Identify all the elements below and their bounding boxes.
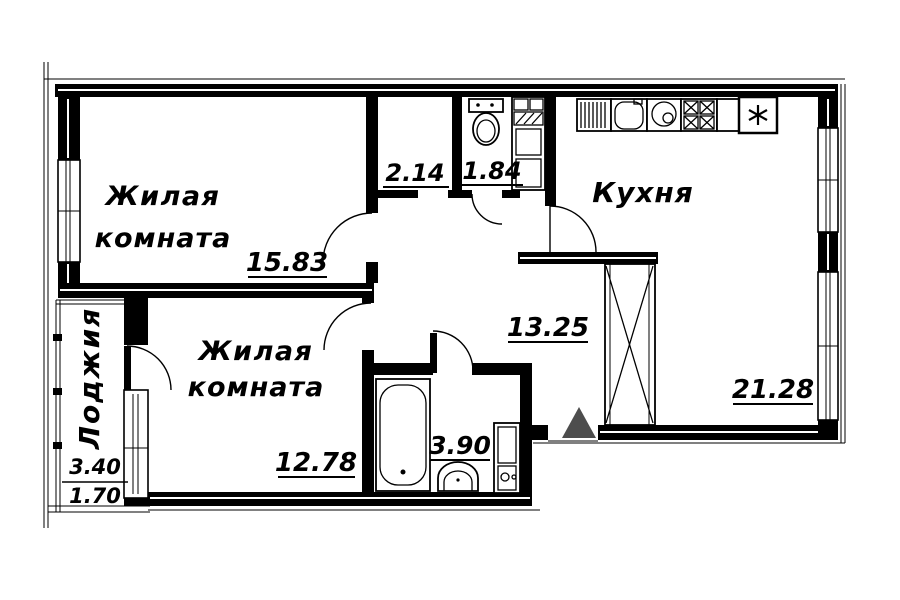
- room-label-loggia: Лоджия: [73, 307, 106, 451]
- entrance-triangle-icon: [562, 407, 596, 438]
- toilet-button: [490, 103, 494, 107]
- room-area: 2.14: [385, 159, 444, 187]
- room-area: 1.84: [462, 157, 521, 185]
- room-label: Жилая: [197, 336, 314, 367]
- stove-icon: [681, 99, 717, 131]
- wall-segment: [818, 420, 838, 440]
- wall-segment: [472, 363, 532, 375]
- door-arc-living2: [324, 303, 371, 350]
- loggia-area-total: 3.40: [69, 455, 121, 479]
- toilet-button: [476, 103, 480, 107]
- window-kitchen-upper: [818, 128, 838, 232]
- window-kitchen-lower: [818, 272, 838, 420]
- door-leaf-balcony: [124, 346, 131, 390]
- wall-segment: [532, 425, 548, 440]
- wall-segment: [452, 97, 462, 190]
- wall-segment: [124, 298, 148, 345]
- wall-segment: [520, 375, 532, 506]
- counter-cell: [577, 99, 611, 131]
- door-arc-living1: [323, 213, 372, 262]
- refrigerator-icon: [739, 97, 777, 133]
- floor-plan: Жилая комната 15.83 Жилая комната 12.78 …: [0, 0, 900, 600]
- bathtub-drain: [401, 470, 406, 475]
- dishwasher-icon: [647, 99, 681, 131]
- bathtub-icon: [376, 379, 430, 491]
- door-arc-wc: [472, 194, 502, 224]
- glazing-post: [53, 442, 62, 449]
- kitchen-sink-icon: [611, 99, 647, 131]
- room-labels: Жилая комната 15.83 Жилая комната 12.78 …: [62, 157, 814, 508]
- door-arc-kitchen: [550, 206, 596, 252]
- wall-segment: [448, 190, 472, 198]
- glazing-post: [53, 388, 62, 395]
- door-arc-balcony: [127, 346, 171, 390]
- window-living1: [58, 160, 80, 262]
- door-leaf-bathroom: [430, 333, 437, 373]
- wall-segment: [362, 350, 374, 492]
- room-label: комната: [95, 223, 232, 254]
- toilet-tank: [469, 99, 503, 112]
- room-label: Кухня: [592, 176, 694, 209]
- kitchen-appliances: [577, 97, 777, 133]
- wall-segment: [502, 190, 520, 198]
- wall-segment: [124, 498, 148, 506]
- washing-machine-icon: [494, 423, 520, 493]
- door-arc-bathroom: [433, 331, 473, 371]
- room-area: 13.25: [507, 313, 589, 343]
- room-area: 12.78: [275, 448, 357, 478]
- wall-segment: [366, 262, 378, 283]
- room-label: комната: [188, 372, 325, 403]
- kitchen-drainboard-icon: [577, 99, 611, 131]
- room-area: 15.83: [246, 248, 328, 278]
- counter-cell: [717, 99, 739, 131]
- room-area: 21.28: [732, 375, 814, 405]
- ventilation-shaft-icon: [605, 264, 655, 425]
- sink-drain: [456, 478, 459, 481]
- toilet-icon: [469, 99, 503, 145]
- loggia-area-reduced: 1.70: [69, 484, 121, 508]
- room-area: 3.90: [429, 431, 491, 460]
- wall-segment: [362, 298, 374, 303]
- wall-segment: [374, 190, 418, 198]
- room-label: Жилая: [104, 181, 221, 212]
- wall-segment: [545, 97, 556, 206]
- bath-sink-icon: [438, 462, 478, 491]
- wall-segment: [374, 363, 433, 375]
- glazing-post: [53, 334, 62, 341]
